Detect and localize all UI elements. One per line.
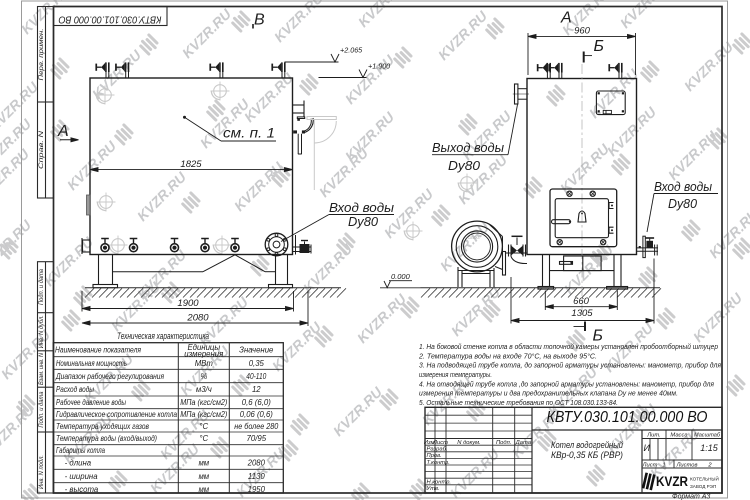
svg-text:+2.065: +2.065 xyxy=(340,46,363,55)
svg-text:°С: °С xyxy=(199,422,208,431)
svg-text:Н.контр.: Н.контр. xyxy=(427,480,452,486)
svg-text:Пров.: Пров. xyxy=(427,453,442,459)
svg-text:Справ. N: Справ. N xyxy=(39,130,45,169)
svg-text:Номинальная мощность: Номинальная мощность xyxy=(56,359,127,368)
svg-text:1: 1 xyxy=(662,462,665,468)
svg-text:А: А xyxy=(560,10,572,27)
svg-text:Инв. N дубл.: Инв. N дубл. xyxy=(39,315,45,348)
svg-text:1130: 1130 xyxy=(248,472,265,481)
svg-text:0,6 (6,0): 0,6 (6,0) xyxy=(242,398,271,407)
svg-text:2. Температура воды на входе: 2. Температура воды на входе 70°С, на вы… xyxy=(418,351,597,360)
svg-text:Формат А3: Формат А3 xyxy=(672,494,710,500)
svg-text:+1.900: +1.900 xyxy=(368,62,390,71)
svg-text:2080: 2080 xyxy=(186,313,209,324)
svg-text:А: А xyxy=(57,123,69,140)
svg-text:4. На отводящей трубе котла ,: 4. На отводящей трубе котла ,до запорной… xyxy=(419,379,714,388)
svg-text:- высота: - высота xyxy=(56,485,99,494)
svg-text:- длина: - длина xyxy=(56,459,92,468)
svg-text:%: % xyxy=(200,372,207,381)
svg-text:Разраб.: Разраб. xyxy=(427,447,448,453)
svg-text:40-110: 40-110 xyxy=(246,372,267,381)
svg-text:измерения температуры и два пр: измерения температуры и два предохраните… xyxy=(419,389,678,398)
svg-text:Б: Б xyxy=(594,38,604,55)
svg-text:КОТЕЛЬНЫЙ: КОТЕЛЬНЫЙ xyxy=(690,475,719,482)
svg-text:Выход воды: Выход воды xyxy=(432,141,504,155)
svg-text:мм: мм xyxy=(198,472,209,481)
svg-text:Лит.: Лит. xyxy=(646,432,661,438)
svg-text:Масштаб: Масштаб xyxy=(694,432,721,438)
svg-text:Перв. примен.: Перв. примен. xyxy=(39,29,45,81)
svg-text:1900: 1900 xyxy=(177,298,199,309)
svg-text:Подп. и дата: Подп. и дата xyxy=(39,391,45,428)
svg-text:Лист: Лист xyxy=(642,462,658,468)
svg-text:Значение: Значение xyxy=(239,346,274,355)
svg-text:Dy80: Dy80 xyxy=(448,159,480,173)
svg-text:м3/ч: м3/ч xyxy=(196,385,212,394)
svg-text:1825: 1825 xyxy=(180,159,202,170)
svg-text:Лист: Лист xyxy=(432,440,448,446)
svg-text:И: И xyxy=(644,443,651,453)
svg-text:Т.контр.: Т.контр. xyxy=(427,460,450,466)
svg-text:измерения температуры.: измерения температуры. xyxy=(419,370,492,379)
svg-text:Гидравлическое сопротивление к: Гидравлическое сопротивление котла xyxy=(56,410,178,419)
svg-text:960: 960 xyxy=(574,26,591,37)
svg-text:Рабочее давление воды: Рабочее давление воды xyxy=(56,398,126,407)
svg-text:КВТУ.030.101.00.000 ВО: КВТУ.030.101.00.000 ВО xyxy=(58,13,161,24)
svg-text:СЕЛХЗ: СЕЛХЗ xyxy=(468,236,480,240)
svg-text:ЗАВОД РЭП: ЗАВОД РЭП xyxy=(690,484,716,489)
svg-text:0.000: 0.000 xyxy=(391,272,411,281)
svg-text:70/95: 70/95 xyxy=(247,434,267,443)
svg-text:МПа (кгс/см2): МПа (кгс/см2) xyxy=(180,410,227,419)
svg-text:1305: 1305 xyxy=(571,308,593,319)
svg-text:В: В xyxy=(254,12,265,29)
svg-text:см. п. 1: см. п. 1 xyxy=(223,126,275,141)
svg-text:Температура воды (вход/выход): Температура воды (вход/выход) xyxy=(56,434,157,443)
svg-text:Подп.: Подп. xyxy=(496,440,511,446)
svg-text:1950: 1950 xyxy=(248,485,266,494)
svg-text:°С: °С xyxy=(199,434,208,443)
svg-text:мм: мм xyxy=(198,459,209,468)
svg-text:0,06 (0,6): 0,06 (0,6) xyxy=(240,410,273,419)
svg-text:N докум.: N докум. xyxy=(457,440,480,446)
svg-text:Диапазон рабочего регулировани: Диапазон рабочего регулирования xyxy=(55,372,165,381)
svg-text:Вход воды: Вход воды xyxy=(654,180,712,194)
svg-text:МПа (кгс/см2): МПа (кгс/см2) xyxy=(180,398,227,407)
svg-text:5. Остальные технические треб: 5. Остальные технические требования по О… xyxy=(419,398,618,407)
svg-text:Dy80: Dy80 xyxy=(348,215,378,229)
svg-text:измерения: измерения xyxy=(184,349,224,358)
svg-text:Dy80: Dy80 xyxy=(668,197,697,211)
svg-text:КВТУ.030.101.00.000 ВО: КВТУ.030.101.00.000 ВО xyxy=(547,409,708,426)
svg-text:Дата: Дата xyxy=(515,440,532,446)
svg-text:Температура уходящих газов: Температура уходящих газов xyxy=(56,422,149,431)
svg-text:0,35: 0,35 xyxy=(249,359,265,368)
svg-text:Котел водогрейный: Котел водогрейный xyxy=(551,440,623,450)
svg-text:Взам. инв. N: Взам. инв. N xyxy=(39,352,45,385)
svg-text:Масса: Масса xyxy=(670,432,688,438)
svg-text:Наименование показателя: Наименование показателя xyxy=(55,346,142,355)
svg-text:КВр-0,35 КБ (РВР): КВр-0,35 КБ (РВР) xyxy=(551,450,623,460)
svg-text:Вход воды: Вход воды xyxy=(329,201,394,215)
svg-text:12: 12 xyxy=(252,385,261,394)
svg-text:Утв.: Утв. xyxy=(426,486,440,492)
svg-text:Инв. N подл.: Инв. N подл. xyxy=(39,455,45,489)
svg-text:Листов: Листов xyxy=(675,462,697,468)
svg-text:МВт: МВт xyxy=(195,359,214,368)
svg-text:Техническая характеристика: Техническая характеристика xyxy=(117,331,209,342)
svg-text:Расход воды: Расход воды xyxy=(56,385,94,394)
svg-text:1:15: 1:15 xyxy=(700,443,719,453)
svg-text:Подп. и дата: Подп. и дата xyxy=(39,268,45,305)
svg-text:2080: 2080 xyxy=(247,459,266,468)
svg-text:- ширина: - ширина xyxy=(56,472,98,481)
svg-text:3. На подводящей трубе котла,: 3. На подводящей трубе котла, до запорно… xyxy=(419,361,721,370)
svg-text:мм: мм xyxy=(198,485,209,494)
svg-text:KVZR: KVZR xyxy=(656,474,688,489)
svg-text:660: 660 xyxy=(573,296,590,307)
svg-text:Габариты котла: Габариты котла xyxy=(56,446,106,455)
svg-text:не более 280: не более 280 xyxy=(234,422,279,431)
svg-text:1. На боковой стенке котла в: 1. На боковой стенке котла в области топ… xyxy=(419,342,718,351)
